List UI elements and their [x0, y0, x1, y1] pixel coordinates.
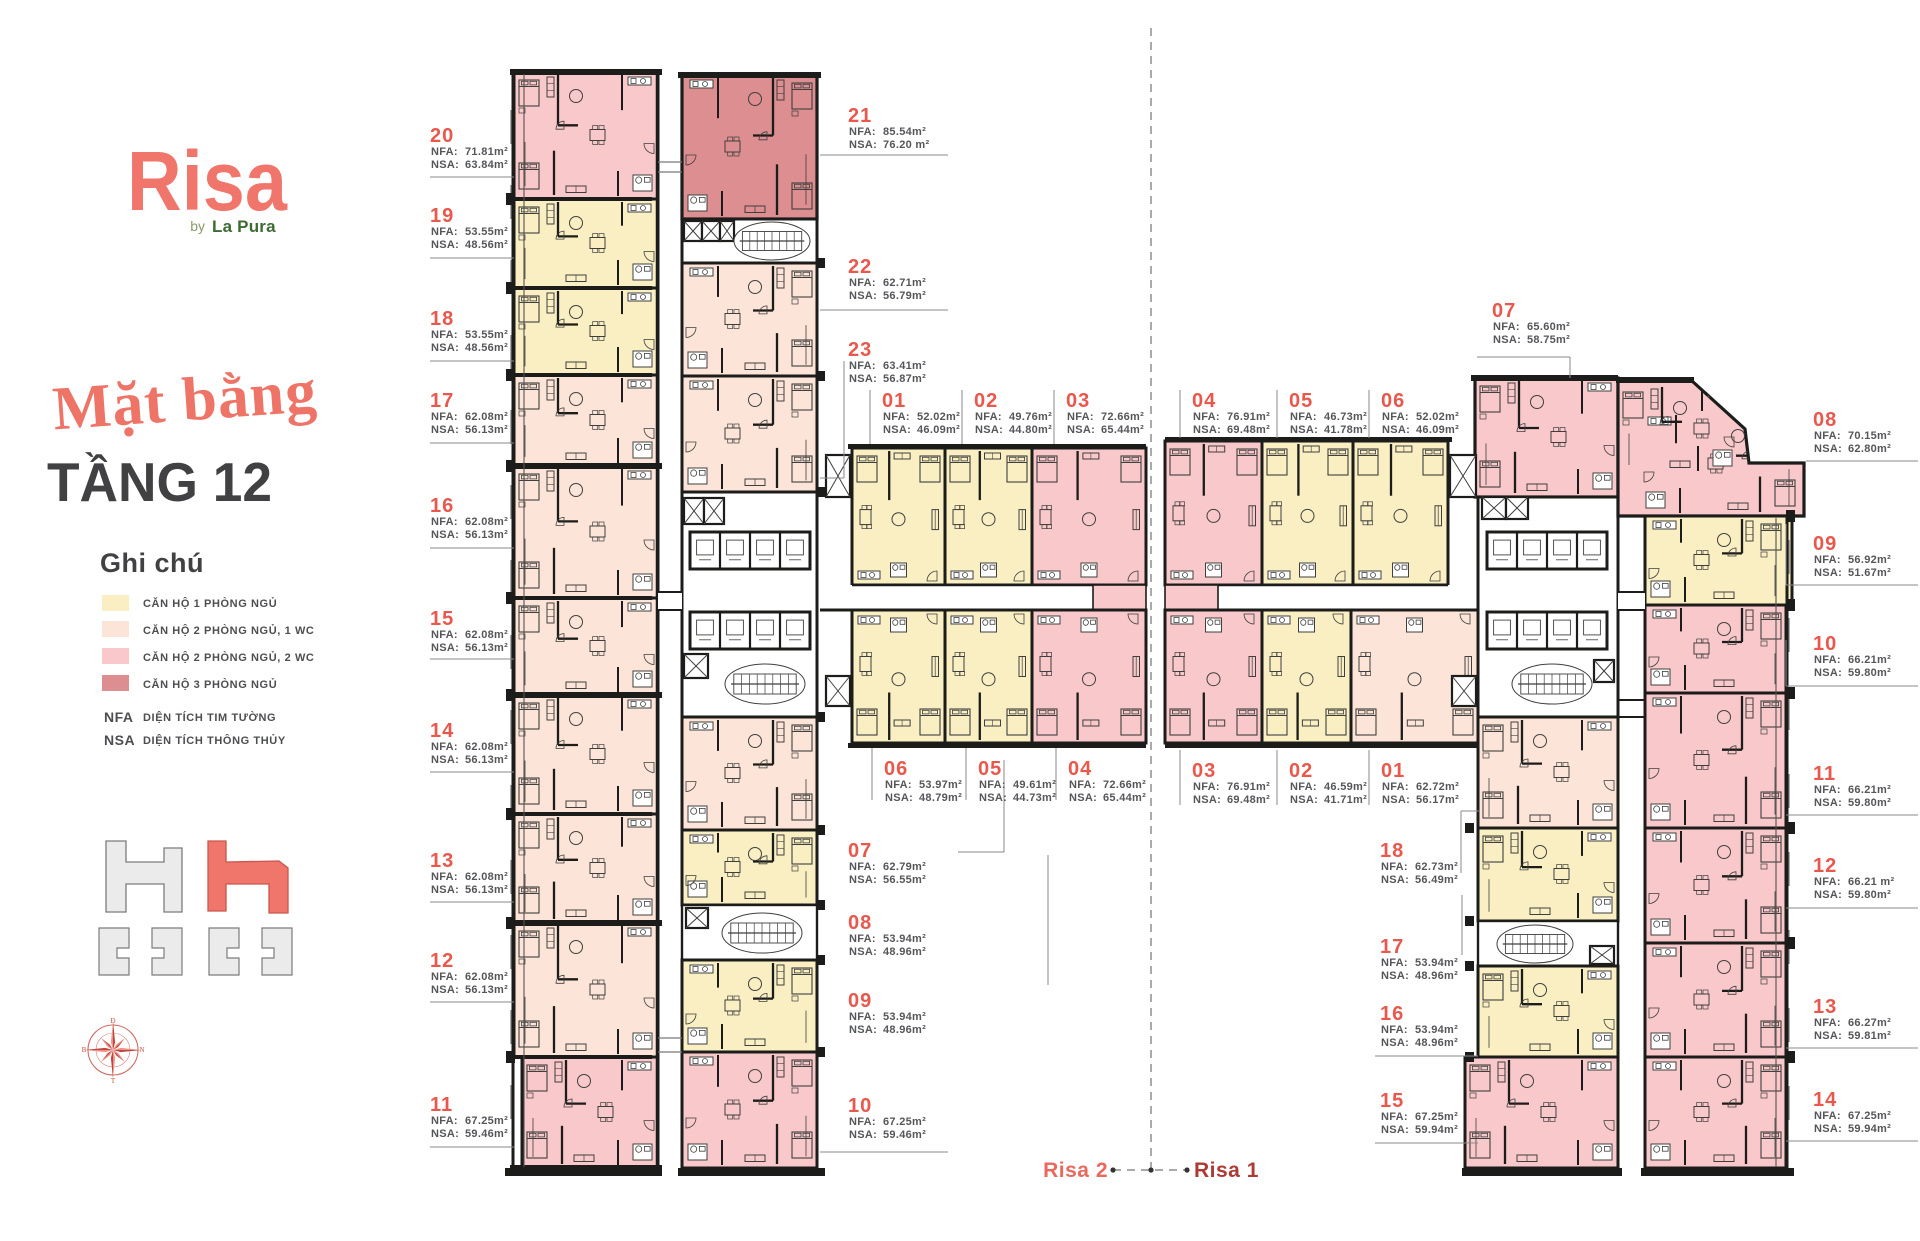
svg-text:NFA:: NFA: [1814, 654, 1841, 666]
svg-text:TẦNG 12: TẦNG 12 [47, 451, 272, 513]
svg-text:DIỆN TÍCH TIM TƯỜNG: DIỆN TÍCH TIM TƯỜNG [143, 711, 276, 724]
svg-text:62.80m²: 62.80m² [1848, 443, 1891, 455]
svg-text:56.17m²: 56.17m² [1416, 794, 1459, 806]
svg-text:71.81m²: 71.81m² [465, 146, 508, 158]
svg-text:41.78m²: 41.78m² [1324, 424, 1367, 436]
svg-text:NFA:: NFA: [849, 360, 876, 372]
svg-text:NFA:: NFA: [431, 629, 458, 641]
svg-text:NFA:: NFA: [431, 329, 458, 341]
svg-text:67.25m²: 67.25m² [883, 1116, 926, 1128]
svg-text:02: 02 [974, 390, 998, 412]
svg-text:59.46m²: 59.46m² [883, 1129, 926, 1141]
svg-text:NSA:: NSA: [1814, 567, 1842, 579]
svg-text:66.21m²: 66.21m² [1848, 654, 1891, 666]
svg-text:62.08m²: 62.08m² [465, 871, 508, 883]
svg-text:08: 08 [848, 912, 872, 934]
svg-text:NSA:: NSA: [885, 792, 913, 804]
svg-text:56.92m²: 56.92m² [1848, 554, 1891, 566]
svg-text:NSA:: NSA: [849, 946, 877, 958]
svg-text:12: 12 [430, 950, 454, 972]
svg-text:NFA:: NFA: [849, 933, 876, 945]
svg-text:NSA:: NSA: [1193, 424, 1221, 436]
svg-text:NSA:: NSA: [849, 139, 877, 151]
svg-text:13: 13 [430, 850, 454, 872]
svg-text:56.13m²: 56.13m² [465, 754, 508, 766]
svg-text:NFA:: NFA: [431, 411, 458, 423]
svg-text:09: 09 [848, 990, 872, 1012]
svg-text:NFA:: NFA: [975, 411, 1002, 423]
svg-text:11: 11 [1813, 763, 1836, 785]
svg-text:01: 01 [882, 390, 906, 412]
svg-text:59.80m²: 59.80m² [1848, 889, 1891, 901]
svg-text:59.80m²: 59.80m² [1848, 667, 1891, 679]
svg-text:NFA:: NFA: [1381, 861, 1408, 873]
svg-text:Risa 1: Risa 1 [1194, 1159, 1259, 1182]
svg-text:Đ: Đ [110, 1017, 115, 1025]
svg-text:Risa 2: Risa 2 [1043, 1159, 1108, 1182]
svg-text:56.49m²: 56.49m² [1415, 874, 1458, 886]
svg-text:16: 16 [1380, 1003, 1404, 1025]
svg-text:NFA:: NFA: [431, 971, 458, 983]
svg-text:NSA:: NSA: [849, 874, 877, 886]
svg-text:56.13m²: 56.13m² [465, 984, 508, 996]
svg-text:NFA:: NFA: [1290, 781, 1317, 793]
svg-text:NFA:: NFA: [1814, 784, 1841, 796]
svg-text:NFA:: NFA: [979, 779, 1006, 791]
svg-text:62.71m²: 62.71m² [883, 277, 926, 289]
svg-text:23: 23 [848, 339, 872, 361]
svg-text:09: 09 [1813, 533, 1837, 555]
svg-text:56.79m²: 56.79m² [883, 290, 926, 302]
svg-text:NFA:: NFA: [885, 779, 912, 791]
svg-text:NSA:: NSA: [431, 754, 459, 766]
svg-text:13: 13 [1813, 996, 1837, 1018]
svg-text:44.73m²: 44.73m² [1013, 792, 1056, 804]
svg-text:46.59m²: 46.59m² [1324, 781, 1367, 793]
svg-text:NFA:: NFA: [1814, 554, 1841, 566]
svg-text:76.91m²: 76.91m² [1227, 411, 1270, 423]
svg-text:10: 10 [848, 1095, 872, 1117]
svg-text:63.41m²: 63.41m² [883, 360, 926, 372]
svg-text:59.94m²: 59.94m² [1415, 1124, 1458, 1136]
svg-text:67.25m²: 67.25m² [465, 1115, 508, 1127]
svg-text:NSA:: NSA: [1381, 1037, 1409, 1049]
svg-text:53.55m²: 53.55m² [465, 329, 508, 341]
svg-text:66.21m²: 66.21m² [1848, 784, 1891, 796]
svg-text:Mặt bằng: Mặt bằng [51, 357, 320, 443]
svg-text:63.84m²: 63.84m² [465, 159, 508, 171]
svg-text:12: 12 [1813, 855, 1837, 877]
svg-text:53.55m²: 53.55m² [465, 226, 508, 238]
svg-text:NSA:: NSA: [1382, 794, 1410, 806]
svg-text:NSA:: NSA: [431, 239, 459, 251]
svg-text:44.80m²: 44.80m² [1009, 424, 1052, 436]
svg-text:NSA:: NSA: [849, 1024, 877, 1036]
svg-text:NFA:: NFA: [431, 516, 458, 528]
svg-text:NSA:: NSA: [431, 884, 459, 896]
svg-text:67.25m²: 67.25m² [1848, 1110, 1891, 1122]
svg-text:NFA:: NFA: [1814, 430, 1841, 442]
svg-text:NSA:: NSA: [979, 792, 1007, 804]
svg-text:NSA:: NSA: [431, 529, 459, 541]
svg-text:17: 17 [1380, 936, 1404, 958]
svg-text:La Pura: La Pura [212, 217, 276, 236]
svg-text:NSA:: NSA: [1382, 424, 1410, 436]
svg-text:CĂN HỘ 1 PHÒNG NGỦ: CĂN HỘ 1 PHÒNG NGỦ [143, 597, 277, 610]
svg-text:NSA:: NSA: [1814, 797, 1842, 809]
svg-text:NSA:: NSA: [849, 290, 877, 302]
svg-text:NSA:: NSA: [975, 424, 1003, 436]
svg-text:NFA:: NFA: [883, 411, 910, 423]
svg-text:by: by [190, 218, 205, 234]
svg-text:16: 16 [430, 495, 454, 517]
svg-text:72.66m²: 72.66m² [1101, 411, 1144, 423]
svg-text:NSA:: NSA: [431, 159, 459, 171]
svg-text:15: 15 [1380, 1090, 1404, 1112]
svg-text:20: 20 [430, 125, 454, 147]
svg-text:06: 06 [884, 758, 908, 780]
svg-text:NSA:: NSA: [431, 1128, 459, 1140]
svg-text:56.87m²: 56.87m² [883, 373, 926, 385]
svg-text:NSA:: NSA: [1069, 792, 1097, 804]
svg-text:NSA:: NSA: [883, 424, 911, 436]
svg-text:46.09m²: 46.09m² [1416, 424, 1459, 436]
svg-text:NFA: NFA [104, 709, 134, 725]
svg-text:NSA:: NSA: [431, 642, 459, 654]
svg-text:65.60m²: 65.60m² [1527, 321, 1570, 333]
svg-text:NSA:: NSA: [1493, 334, 1521, 346]
svg-text:70.15m²: 70.15m² [1848, 430, 1891, 442]
svg-text:48.79m²: 48.79m² [919, 792, 962, 804]
svg-text:18: 18 [1380, 840, 1404, 862]
svg-text:52.02m²: 52.02m² [917, 411, 960, 423]
svg-text:NSA:: NSA: [431, 984, 459, 996]
svg-text:CĂN HỘ 2 PHÒNG NGỦ, 1 WC: CĂN HỘ 2 PHÒNG NGỦ, 1 WC [143, 624, 314, 637]
svg-text:NSA:: NSA: [431, 342, 459, 354]
svg-text:62.72m²: 62.72m² [1416, 781, 1459, 793]
svg-text:NSA:: NSA: [1381, 970, 1409, 982]
svg-text:53.94m²: 53.94m² [883, 1011, 926, 1023]
svg-text:NFA:: NFA: [1493, 321, 1520, 333]
svg-text:NFA:: NFA: [1193, 411, 1220, 423]
svg-text:NSA:: NSA: [849, 373, 877, 385]
svg-text:76.20 m²: 76.20 m² [883, 139, 929, 151]
svg-text:NSA:: NSA: [431, 424, 459, 436]
svg-text:07: 07 [848, 840, 872, 862]
svg-text:62.08m²: 62.08m² [465, 516, 508, 528]
svg-text:19: 19 [430, 205, 454, 227]
svg-text:NFA:: NFA: [1193, 781, 1220, 793]
svg-text:56.13m²: 56.13m² [465, 642, 508, 654]
svg-text:58.75m²: 58.75m² [1527, 334, 1570, 346]
svg-text:59.81m²: 59.81m² [1848, 1030, 1891, 1042]
svg-text:21: 21 [848, 105, 872, 127]
svg-text:53.94m²: 53.94m² [1415, 957, 1458, 969]
svg-text:NFA:: NFA: [849, 1116, 876, 1128]
svg-text:66.27m²: 66.27m² [1848, 1017, 1891, 1029]
svg-text:48.96m²: 48.96m² [1415, 970, 1458, 982]
svg-text:76.91m²: 76.91m² [1227, 781, 1270, 793]
svg-text:NFA:: NFA: [431, 146, 458, 158]
svg-text:48.96m²: 48.96m² [883, 946, 926, 958]
svg-text:56.13m²: 56.13m² [465, 424, 508, 436]
svg-text:41.71m²: 41.71m² [1324, 794, 1367, 806]
svg-text:59.46m²: 59.46m² [465, 1128, 508, 1140]
svg-text:NFA:: NFA: [431, 226, 458, 238]
svg-text:Risa: Risa [127, 134, 288, 228]
svg-text:62.08m²: 62.08m² [465, 971, 508, 983]
svg-text:NFA:: NFA: [1814, 1110, 1841, 1122]
svg-text:72.66m²: 72.66m² [1103, 779, 1146, 791]
svg-text:17: 17 [430, 390, 454, 412]
svg-text:NSA:: NSA: [1381, 874, 1409, 886]
svg-text:NFA:: NFA: [1814, 876, 1841, 888]
svg-text:NFA:: NFA: [1381, 957, 1408, 969]
svg-text:NFA:: NFA: [849, 277, 876, 289]
svg-text:06: 06 [1381, 390, 1405, 412]
svg-text:22: 22 [848, 256, 872, 278]
svg-text:NSA: NSA [104, 732, 135, 748]
svg-text:DIỆN TÍCH THÔNG THỦY: DIỆN TÍCH THÔNG THỦY [143, 734, 286, 747]
svg-text:69.48m²: 69.48m² [1227, 424, 1270, 436]
svg-text:04: 04 [1192, 390, 1216, 412]
svg-text:62.08m²: 62.08m² [465, 741, 508, 753]
svg-text:14: 14 [1813, 1089, 1837, 1111]
svg-text:NFA:: NFA: [1290, 411, 1317, 423]
svg-text:65.44m²: 65.44m² [1101, 424, 1144, 436]
svg-text:NSA:: NSA: [1814, 667, 1842, 679]
svg-text:53.94m²: 53.94m² [1415, 1024, 1458, 1036]
svg-text:NFA:: NFA: [431, 1115, 458, 1127]
svg-text:65.44m²: 65.44m² [1103, 792, 1146, 804]
svg-text:49.61m²: 49.61m² [1013, 779, 1056, 791]
svg-text:NFA:: NFA: [1382, 411, 1409, 423]
svg-text:NFA:: NFA: [1814, 1017, 1841, 1029]
svg-text:Ghi chú: Ghi chú [100, 548, 204, 578]
svg-text:NFA:: NFA: [1067, 411, 1094, 423]
svg-text:51.67m²: 51.67m² [1848, 567, 1891, 579]
svg-text:62.79m²: 62.79m² [883, 861, 926, 873]
svg-text:NSA:: NSA: [1381, 1124, 1409, 1136]
svg-text:NSA:: NSA: [1193, 794, 1221, 806]
svg-text:69.48m²: 69.48m² [1227, 794, 1270, 806]
svg-text:NSA:: NSA: [1814, 443, 1842, 455]
svg-text:NFA:: NFA: [1381, 1111, 1408, 1123]
svg-text:NFA:: NFA: [431, 871, 458, 883]
svg-text:62.08m²: 62.08m² [465, 629, 508, 641]
svg-text:59.80m²: 59.80m² [1848, 797, 1891, 809]
svg-text:10: 10 [1813, 633, 1837, 655]
svg-text:85.54m²: 85.54m² [883, 126, 926, 138]
svg-text:N: N [139, 1046, 144, 1054]
svg-text:02: 02 [1289, 760, 1313, 782]
svg-text:NFA:: NFA: [849, 1011, 876, 1023]
svg-text:NFA:: NFA: [431, 741, 458, 753]
svg-text:56.13m²: 56.13m² [465, 529, 508, 541]
svg-text:03: 03 [1066, 390, 1090, 412]
svg-text:48.96m²: 48.96m² [883, 1024, 926, 1036]
svg-text:NSA:: NSA: [849, 1129, 877, 1141]
svg-text:04: 04 [1068, 758, 1092, 780]
svg-text:NFA:: NFA: [849, 126, 876, 138]
svg-text:NSA:: NSA: [1067, 424, 1095, 436]
svg-text:53.97m²: 53.97m² [919, 779, 962, 791]
svg-text:CĂN HỘ 2 PHÒNG NGỦ, 2 WC: CĂN HỘ 2 PHÒNG NGỦ, 2 WC [143, 651, 314, 664]
svg-text:59.94m²: 59.94m² [1848, 1123, 1891, 1135]
svg-text:05: 05 [1289, 390, 1313, 412]
svg-text:48.96m²: 48.96m² [1415, 1037, 1458, 1049]
svg-text:18: 18 [430, 308, 454, 330]
svg-text:62.08m²: 62.08m² [465, 411, 508, 423]
svg-text:01: 01 [1381, 760, 1405, 782]
svg-text:NFA:: NFA: [849, 861, 876, 873]
svg-text:48.56m²: 48.56m² [465, 342, 508, 354]
svg-text:15: 15 [430, 608, 454, 630]
svg-text:NFA:: NFA: [1382, 781, 1409, 793]
svg-text:49.76m²: 49.76m² [1009, 411, 1052, 423]
svg-text:NSA:: NSA: [1290, 794, 1318, 806]
svg-text:NFA:: NFA: [1069, 779, 1096, 791]
svg-text:53.94m²: 53.94m² [883, 933, 926, 945]
svg-text:52.02m²: 52.02m² [1416, 411, 1459, 423]
svg-text:67.25m²: 67.25m² [1415, 1111, 1458, 1123]
svg-text:56.55m²: 56.55m² [883, 874, 926, 886]
svg-text:08: 08 [1813, 409, 1837, 431]
svg-text:56.13m²: 56.13m² [465, 884, 508, 896]
svg-text:14: 14 [430, 720, 454, 742]
svg-text:NFA:: NFA: [1381, 1024, 1408, 1036]
svg-text:11: 11 [430, 1094, 453, 1116]
svg-text:46.09m²: 46.09m² [917, 424, 960, 436]
svg-text:NSA:: NSA: [1814, 1123, 1842, 1135]
svg-text:B: B [82, 1046, 87, 1054]
svg-text:66.21 m²: 66.21 m² [1848, 876, 1894, 888]
svg-text:NSA:: NSA: [1814, 889, 1842, 901]
svg-text:T: T [111, 1077, 116, 1085]
svg-text:CĂN HỘ 3 PHÒNG NGỦ: CĂN HỘ 3 PHÒNG NGỦ [143, 678, 277, 691]
svg-text:46.73m²: 46.73m² [1324, 411, 1367, 423]
svg-text:62.73m²: 62.73m² [1415, 861, 1458, 873]
svg-text:05: 05 [978, 758, 1002, 780]
svg-text:03: 03 [1192, 760, 1216, 782]
svg-text:NSA:: NSA: [1290, 424, 1318, 436]
svg-text:NSA:: NSA: [1814, 1030, 1842, 1042]
svg-text:07: 07 [1492, 300, 1516, 322]
svg-text:48.56m²: 48.56m² [465, 239, 508, 251]
